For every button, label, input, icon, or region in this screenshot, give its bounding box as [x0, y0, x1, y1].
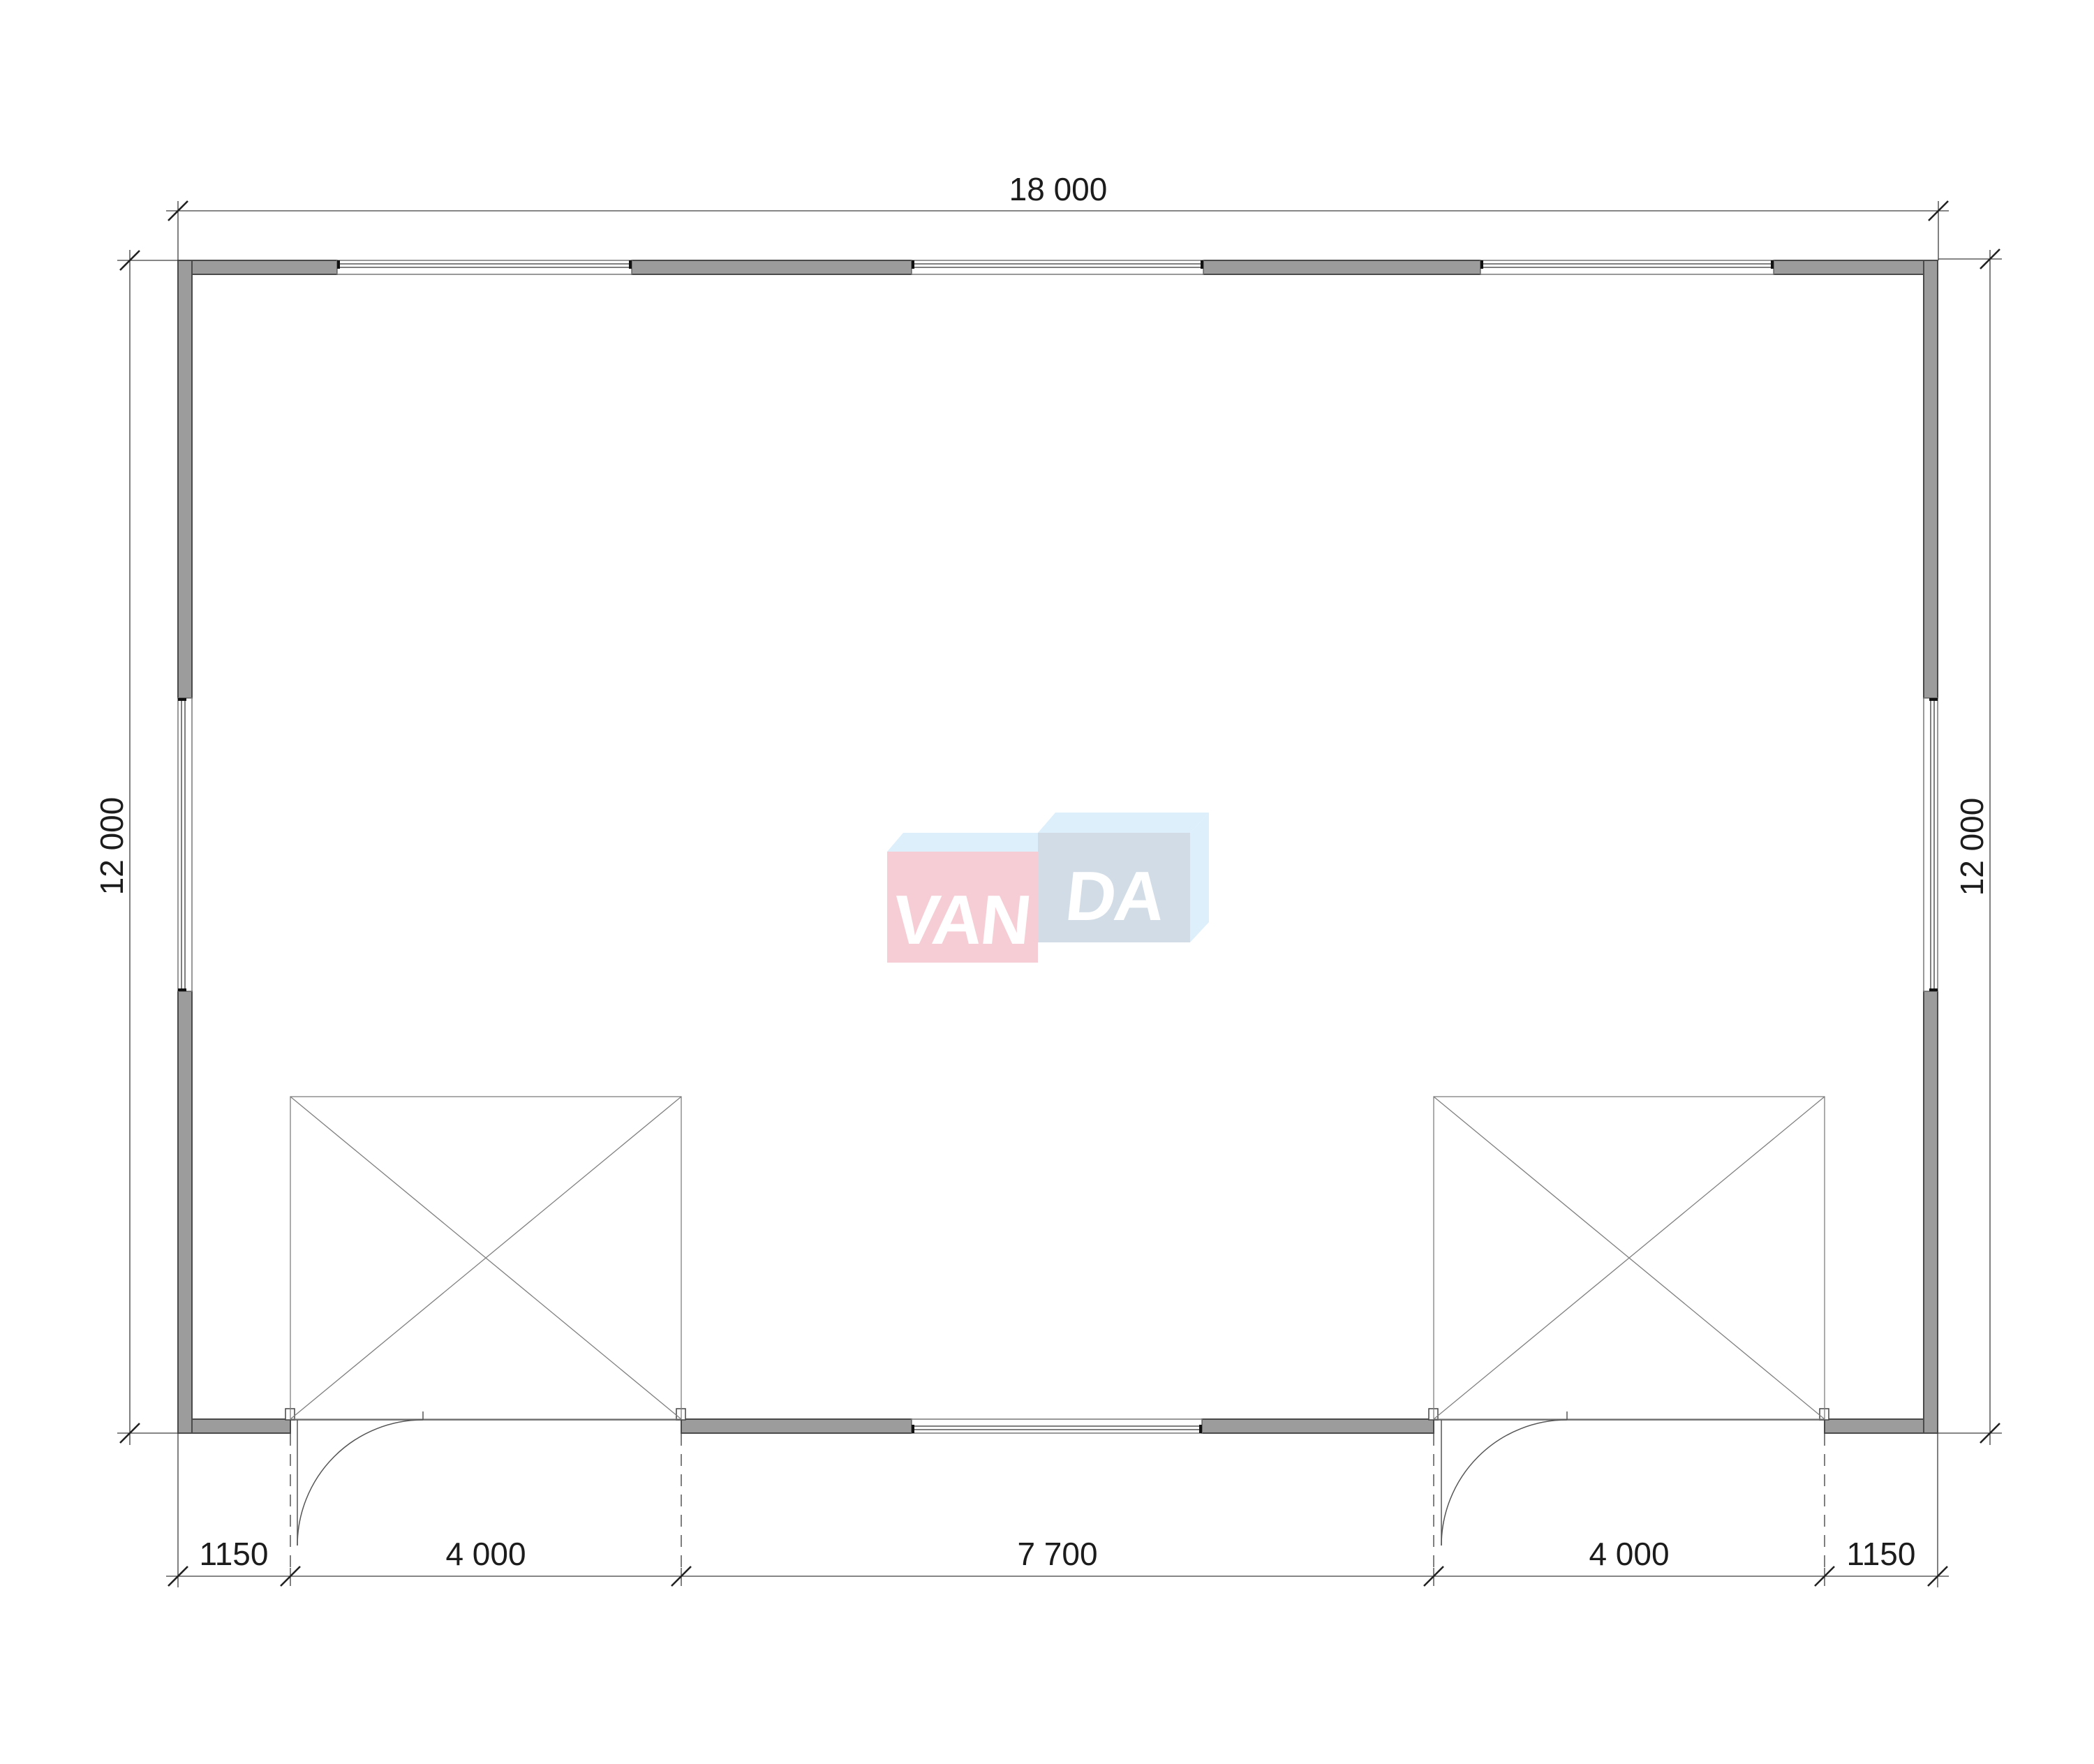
bottom-wall-segment: [1825, 1419, 1938, 1433]
floor-plan-drawing: 18 000 12 000 12 000: [0, 0, 2094, 1764]
bottom-wall-segment: [681, 1419, 912, 1433]
garage-door-panels: [290, 1097, 1825, 1419]
vanda-watermark: VAN DA: [887, 813, 1209, 963]
dim-label-bottom-3: 4 000: [1589, 1536, 1669, 1572]
right-wall-segment: [1924, 260, 1938, 698]
window-top-1: [337, 260, 632, 274]
dimension-top: 18 000: [166, 171, 1949, 260]
right-wall-segment: [1924, 991, 1938, 1433]
dimension-bottom: 1150 4 000 7 700 4 000 1150: [166, 1433, 1949, 1587]
dim-label-bottom-2: 7 700: [1017, 1536, 1097, 1572]
swing-door-right: [1441, 1411, 1567, 1546]
window-top-2: [912, 260, 1203, 274]
watermark-blue-side-face: [1190, 813, 1209, 942]
dim-label-right: 12 000: [1954, 798, 1990, 896]
dim-label-bottom-0: 1150: [200, 1536, 269, 1572]
garage-door-panel-left: [290, 1097, 681, 1419]
dim-label-bottom-4: 1150: [1847, 1536, 1916, 1572]
left-wall-segment: [178, 991, 192, 1433]
top-wall-segment: [178, 260, 337, 274]
top-wall-segment: [1203, 260, 1480, 274]
dim-label-left: 12 000: [94, 797, 130, 896]
window-top-3: [1480, 260, 1774, 274]
window-right: [1924, 698, 1938, 991]
garage-door-panel-right: [1434, 1097, 1825, 1419]
floor-plan-page: 18 000 12 000 12 000: [0, 0, 2094, 1764]
dim-label-bottom-1: 4 000: [445, 1536, 526, 1572]
swing-door-left: [297, 1411, 423, 1546]
window-left: [178, 698, 192, 991]
bottom-wall-segment: [178, 1419, 290, 1433]
top-wall-segment: [1774, 260, 1938, 274]
watermark-blue-top-face: [1038, 813, 1209, 833]
door-swing-arc: [297, 1420, 423, 1546]
dimension-left: 12 000: [94, 250, 179, 1445]
watermark-pink-top-face: [887, 833, 1055, 852]
door-swing-arc: [1441, 1420, 1567, 1546]
dimension-right: 12 000: [1938, 249, 2002, 1445]
watermark-letters-van: VAN: [889, 881, 1033, 959]
bottom-wall-segment: [1202, 1419, 1434, 1433]
window-bottom: [912, 1419, 1202, 1433]
left-wall-segment: [178, 260, 192, 698]
watermark-letters-da: DA: [1062, 857, 1167, 935]
top-wall-segment: [632, 260, 912, 274]
dim-label-top: 18 000: [1009, 171, 1108, 207]
